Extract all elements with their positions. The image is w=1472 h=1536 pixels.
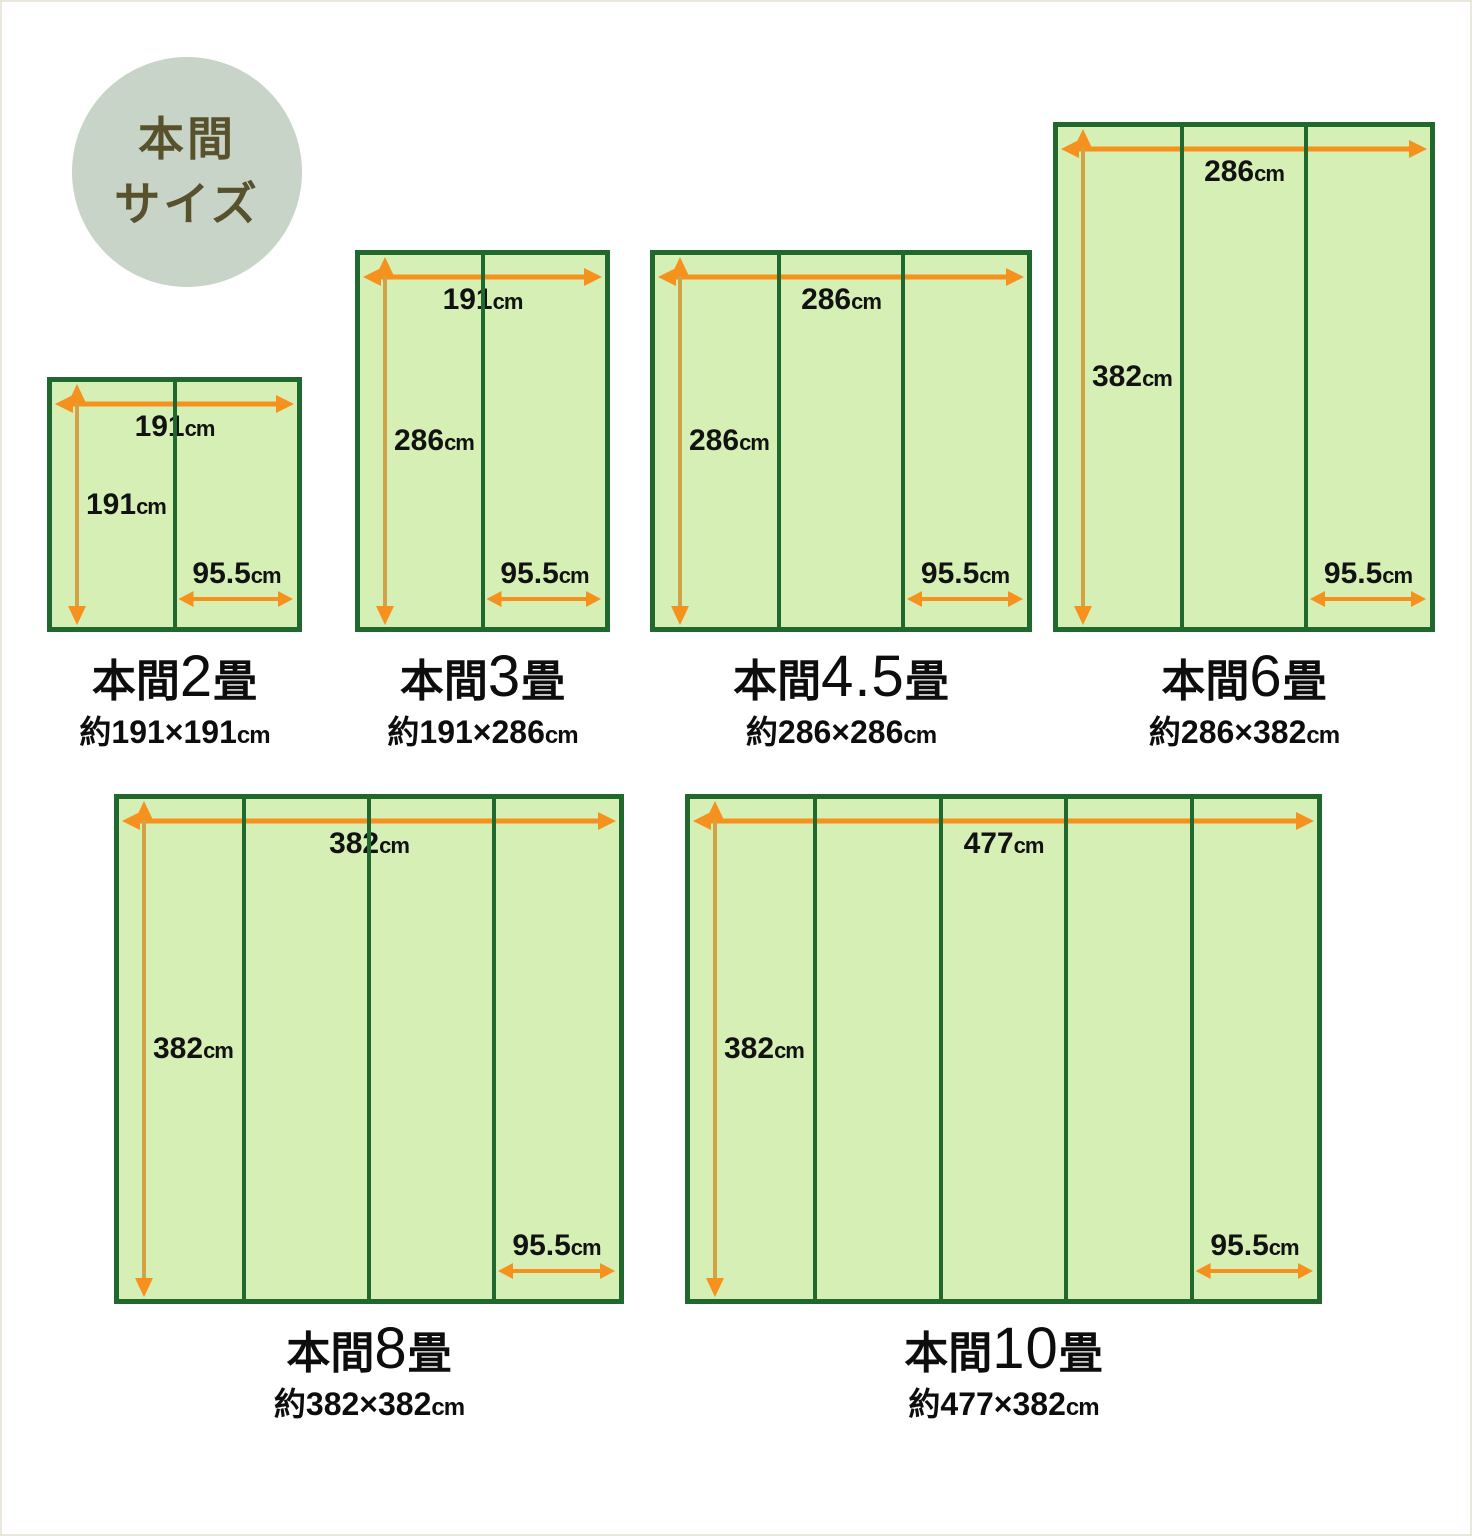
mat-width-dimension-label: 95.5cm: [1192, 1231, 1317, 1261]
mat-divider: [939, 799, 943, 1299]
tatami-rect: 286cm 382cm 95.5cm: [1053, 122, 1435, 632]
panel-title: 本間10畳: [904, 1320, 1103, 1378]
panel-subtitle: 約191×286cm: [387, 716, 577, 748]
mat-divider: [173, 382, 177, 627]
mat-width-dimension-label: 95.5cm: [1306, 559, 1430, 589]
mat-width-dimension-label: 95.5cm: [483, 559, 606, 589]
tatami-rect: 191cm 286cm 95.5cm: [355, 250, 610, 632]
width-dimension-label: 286cm: [1058, 157, 1430, 187]
badge-line1: 本間: [138, 107, 236, 172]
badge-line2: サイズ: [114, 172, 260, 237]
mat-width-dimension-label: 95.5cm: [175, 559, 298, 589]
panel-subtitle: 約191×191cm: [79, 716, 269, 748]
mat-divider: [1064, 799, 1068, 1299]
tatami-rect: 382cm 382cm 95.5cm: [114, 794, 624, 1304]
height-dimension-label: 191cm: [86, 490, 166, 520]
tatami-size-diagram: 本間 サイズ 191cm 191cm 95.5cm 本間2畳 約191×191c…: [0, 0, 1472, 1536]
mat-divider: [242, 799, 246, 1299]
tatami-rect: 191cm 191cm 95.5cm: [47, 377, 302, 632]
tatami-panel: 286cm 286cm 95.5cm 本間4.5畳 約286×286cm: [650, 250, 1032, 632]
mat-divider: [492, 799, 496, 1299]
panel-title: 本間3畳: [400, 648, 565, 706]
height-dimension-label: 382cm: [1092, 362, 1172, 392]
panel-title: 本間8畳: [286, 1320, 451, 1378]
panel-title: 本間6畳: [1161, 648, 1326, 706]
mat-width-dimension-label: 95.5cm: [903, 559, 1027, 589]
mat-divider: [1180, 127, 1184, 627]
mat-divider: [901, 255, 905, 627]
width-dimension-label: 286cm: [655, 285, 1027, 315]
height-dimension-label: 382cm: [724, 1034, 804, 1064]
tatami-rect: 286cm 286cm 95.5cm: [650, 250, 1032, 632]
height-dimension-label: 382cm: [153, 1034, 233, 1064]
mat-divider: [367, 799, 371, 1299]
tatami-panel: 191cm 191cm 95.5cm 本間2畳 約191×191cm: [47, 377, 302, 632]
tatami-panel: 382cm 382cm 95.5cm 本間8畳 約382×382cm: [114, 794, 624, 1304]
mat-width-dimension-label: 95.5cm: [494, 1231, 619, 1261]
panel-subtitle: 約477×382cm: [908, 1388, 1098, 1420]
mat-divider: [1304, 127, 1308, 627]
tatami-panel: 191cm 286cm 95.5cm 本間3畳 約191×286cm: [355, 250, 610, 632]
panel-subtitle: 約286×286cm: [746, 716, 936, 748]
tatami-panel: 286cm 382cm 95.5cm 本間6畳 約286×382cm: [1053, 122, 1435, 632]
panel-title: 本間2畳: [92, 648, 257, 706]
tatami-panel: 477cm 382cm 95.5cm 本間10畳 約477×382cm: [685, 794, 1322, 1304]
mat-divider: [481, 255, 485, 627]
tatami-rect: 477cm 382cm 95.5cm: [685, 794, 1322, 1304]
panel-title: 本間4.5畳: [733, 648, 949, 706]
panel-subtitle: 約286×382cm: [1149, 716, 1339, 748]
height-dimension-label: 286cm: [394, 426, 474, 456]
mat-divider: [777, 255, 781, 627]
height-dimension-label: 286cm: [689, 426, 769, 456]
panel-subtitle: 約382×382cm: [274, 1388, 464, 1420]
mat-divider: [813, 799, 817, 1299]
mat-divider: [1190, 799, 1194, 1299]
size-badge: 本間 サイズ: [72, 57, 302, 287]
width-dimension-label: 477cm: [690, 829, 1317, 859]
